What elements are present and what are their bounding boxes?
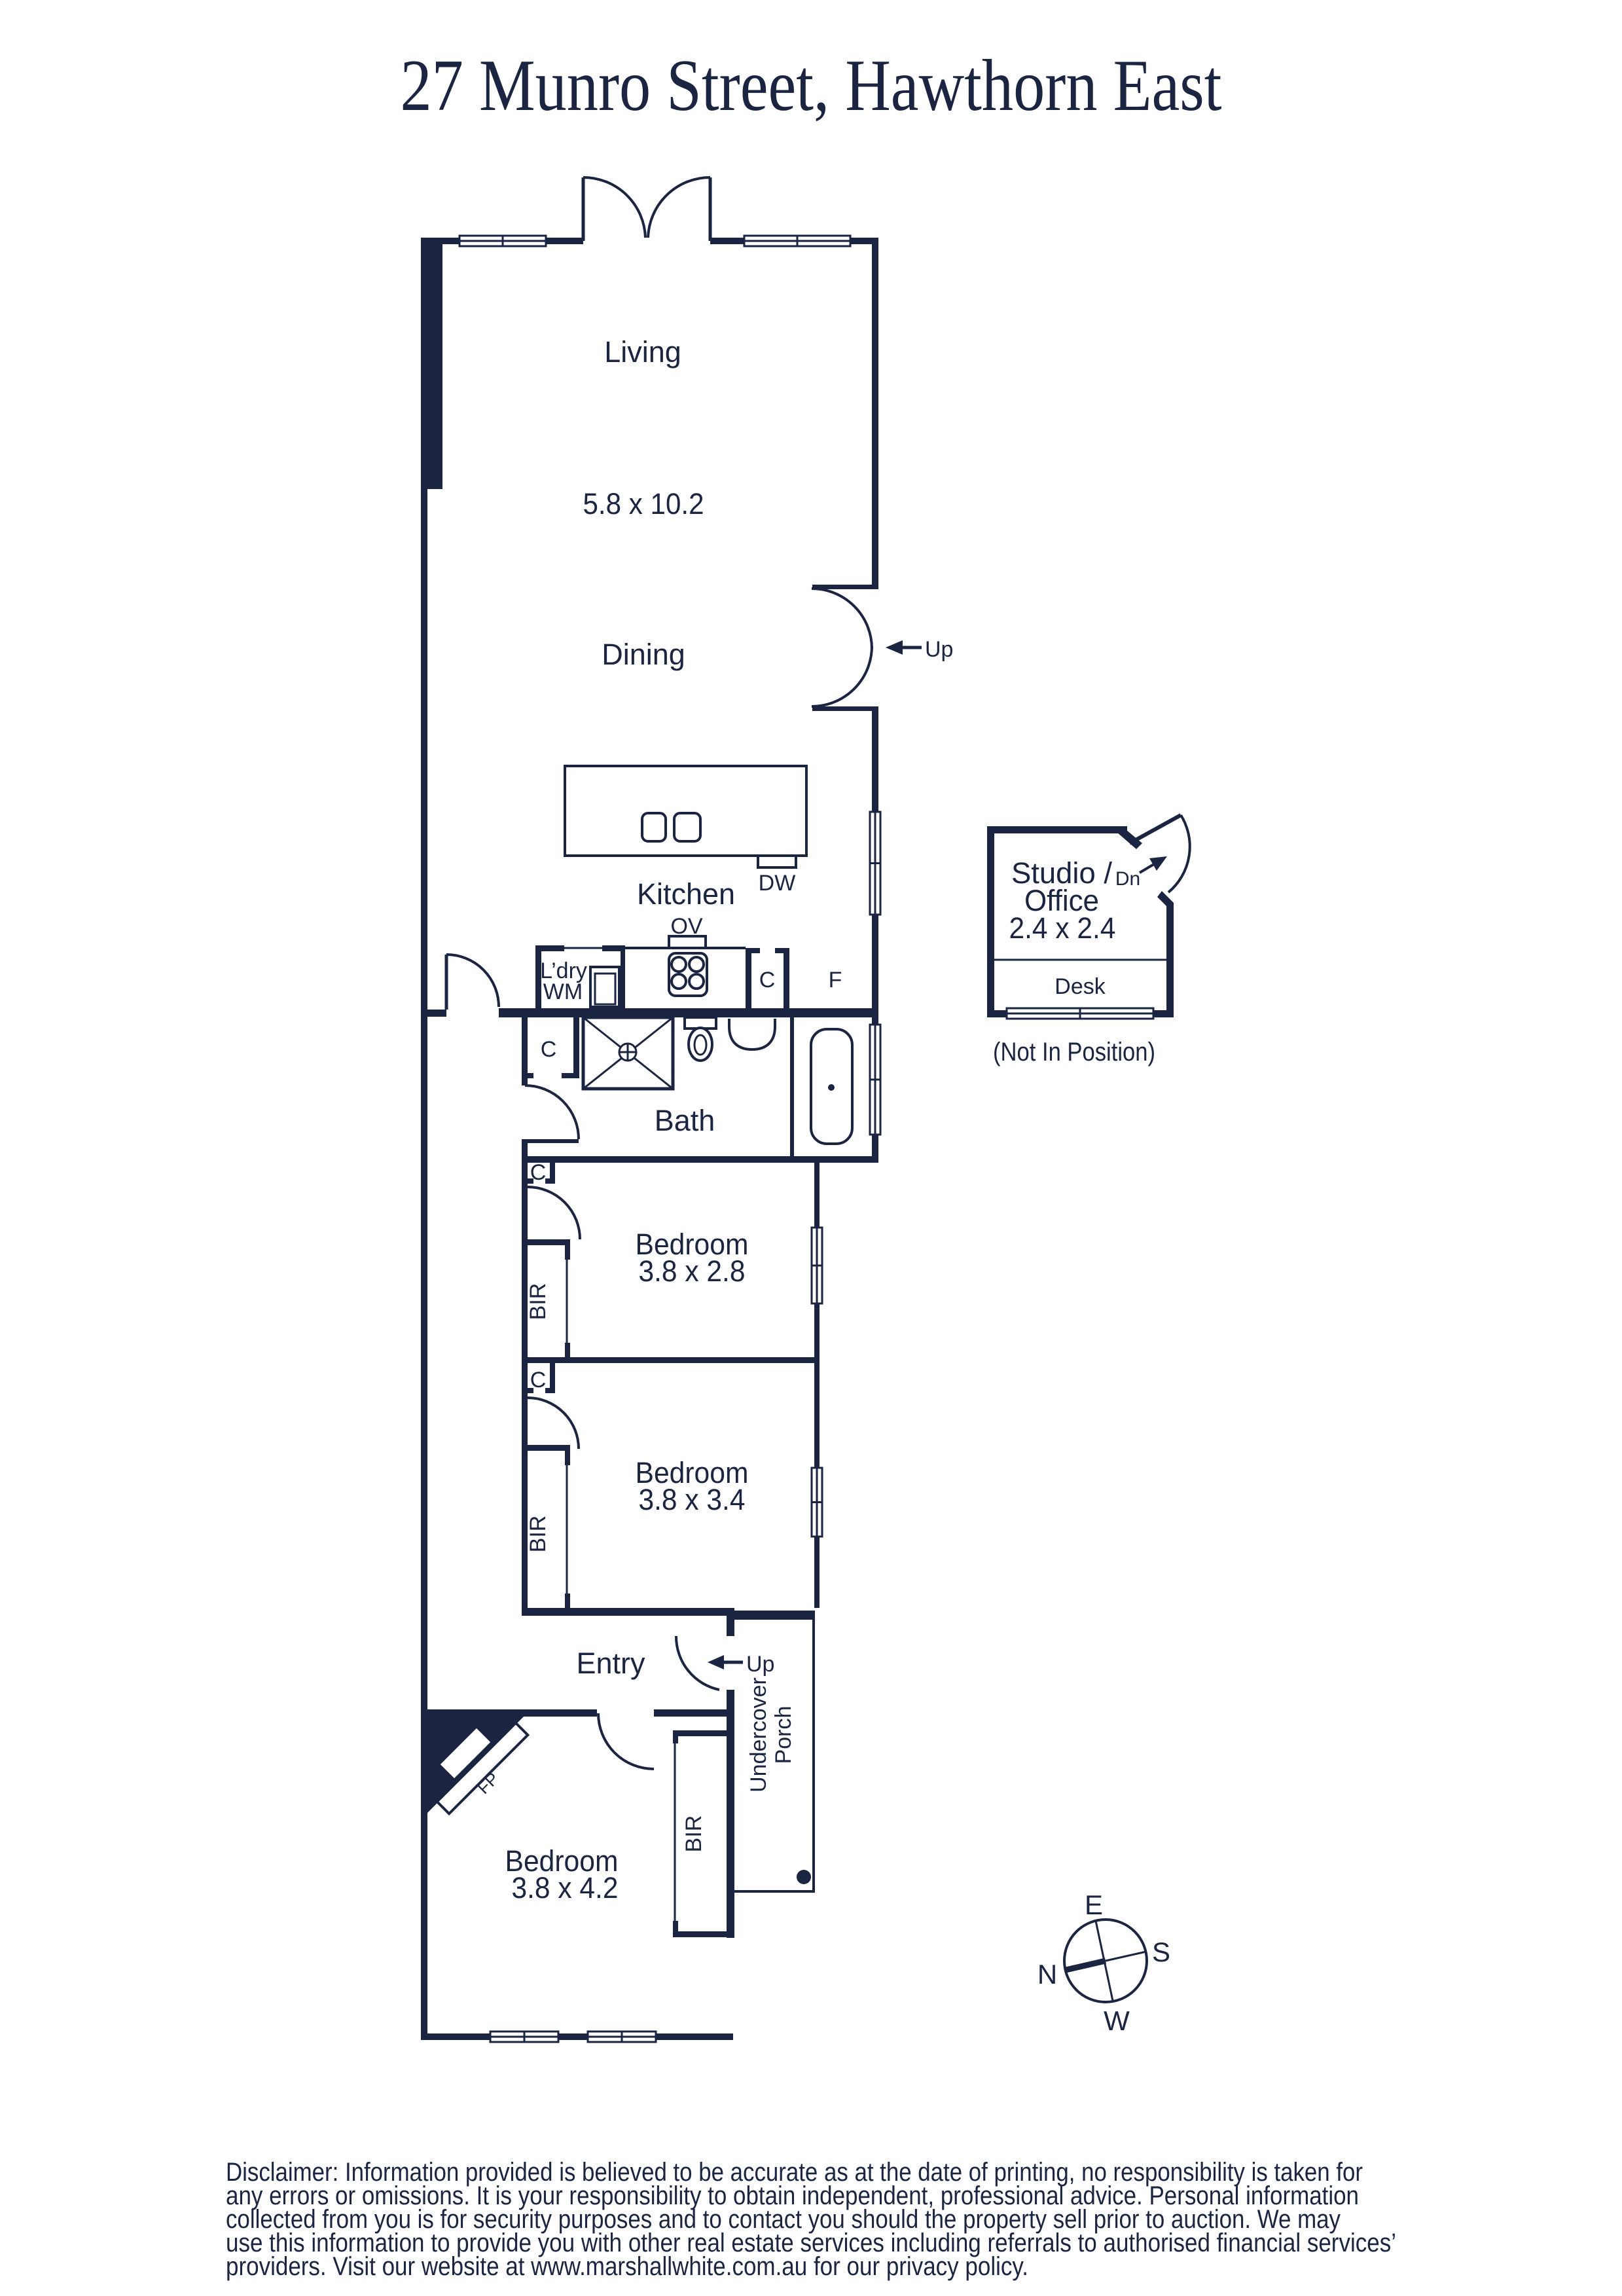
svg-text:Up: Up [925,637,953,662]
svg-text:5.8 x 10.2: 5.8 x 10.2 [583,487,704,520]
svg-text:(Not In Position): (Not In Position) [993,1038,1155,1066]
svg-text:Dn: Dn [1115,868,1140,890]
svg-text:W: W [1104,2005,1130,2036]
svg-text:3.8 x 3.4: 3.8 x 3.4 [639,1483,746,1516]
svg-text:E: E [1085,1889,1103,1920]
svg-text:Dining: Dining [602,638,685,671]
svg-text:C: C [759,968,776,993]
svg-text:BIR: BIR [681,1815,706,1853]
svg-text:BIR: BIR [526,1516,550,1553]
svg-text:Undercover: Undercover [746,1677,771,1793]
svg-text:Porch: Porch [771,1706,796,1764]
svg-text:F: F [829,968,842,993]
svg-text:DW: DW [759,871,796,896]
svg-text:providers. Visit our website a: providers. Visit our website at www.mars… [226,2252,1028,2281]
svg-text:Living: Living [604,335,681,369]
svg-text:S: S [1152,1937,1170,1967]
svg-text:OV: OV [670,914,702,939]
svg-text:Bath: Bath [655,1104,715,1137]
svg-text:WM: WM [543,979,583,1004]
svg-text:Entry: Entry [576,1647,645,1680]
svg-text:C: C [530,1160,547,1185]
svg-text:C: C [541,1037,557,1062]
svg-text:Up: Up [746,1652,774,1677]
svg-text:N: N [1037,1959,1057,1990]
svg-text:Kitchen: Kitchen [637,877,735,911]
svg-text:C: C [530,1368,547,1393]
svg-text:BIR: BIR [526,1283,550,1321]
svg-text:3.8 x 4.2: 3.8 x 4.2 [512,1871,619,1904]
svg-text:27 Munro Street, Hawthorn East: 27 Munro Street, Hawthorn East [401,45,1222,126]
svg-text:2.4 x 2.4: 2.4 x 2.4 [1009,911,1116,945]
svg-text:3.8 x 2.8: 3.8 x 2.8 [639,1254,746,1288]
svg-text:Desk: Desk [1054,974,1106,999]
